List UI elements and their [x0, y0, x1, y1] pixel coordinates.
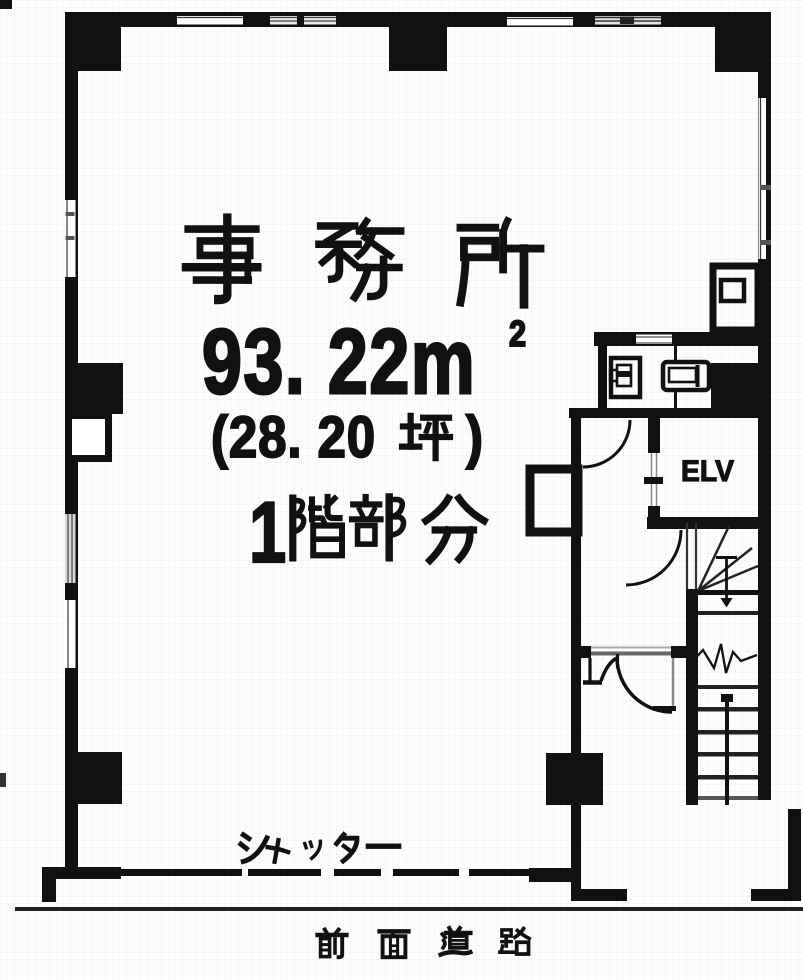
svg-text:2: 2 [509, 315, 526, 355]
svg-text:1: 1 [249, 485, 286, 581]
svg-text:93. 22m: 93. 22m [202, 310, 476, 413]
svg-text:(28. 20: (28. 20 [211, 405, 376, 470]
svg-text:ELV: ELV [681, 455, 734, 488]
svg-text:): ) [466, 405, 483, 470]
